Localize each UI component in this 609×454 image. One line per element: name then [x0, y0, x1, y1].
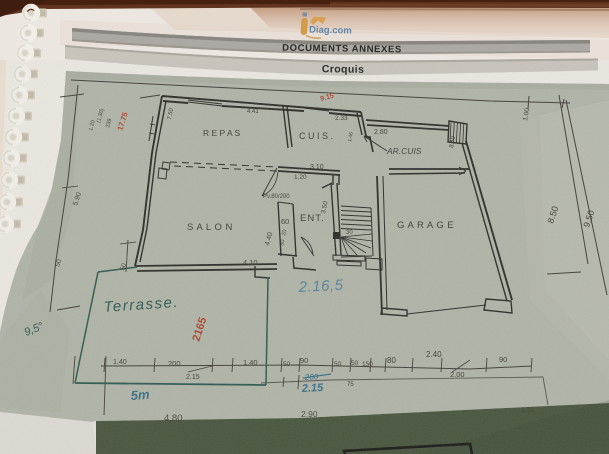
svg-text:Diag.com: Diag.com	[309, 25, 352, 37]
svg-text:DOCUMENTS ANNEXES: DOCUMENTS ANNEXES	[282, 43, 402, 56]
